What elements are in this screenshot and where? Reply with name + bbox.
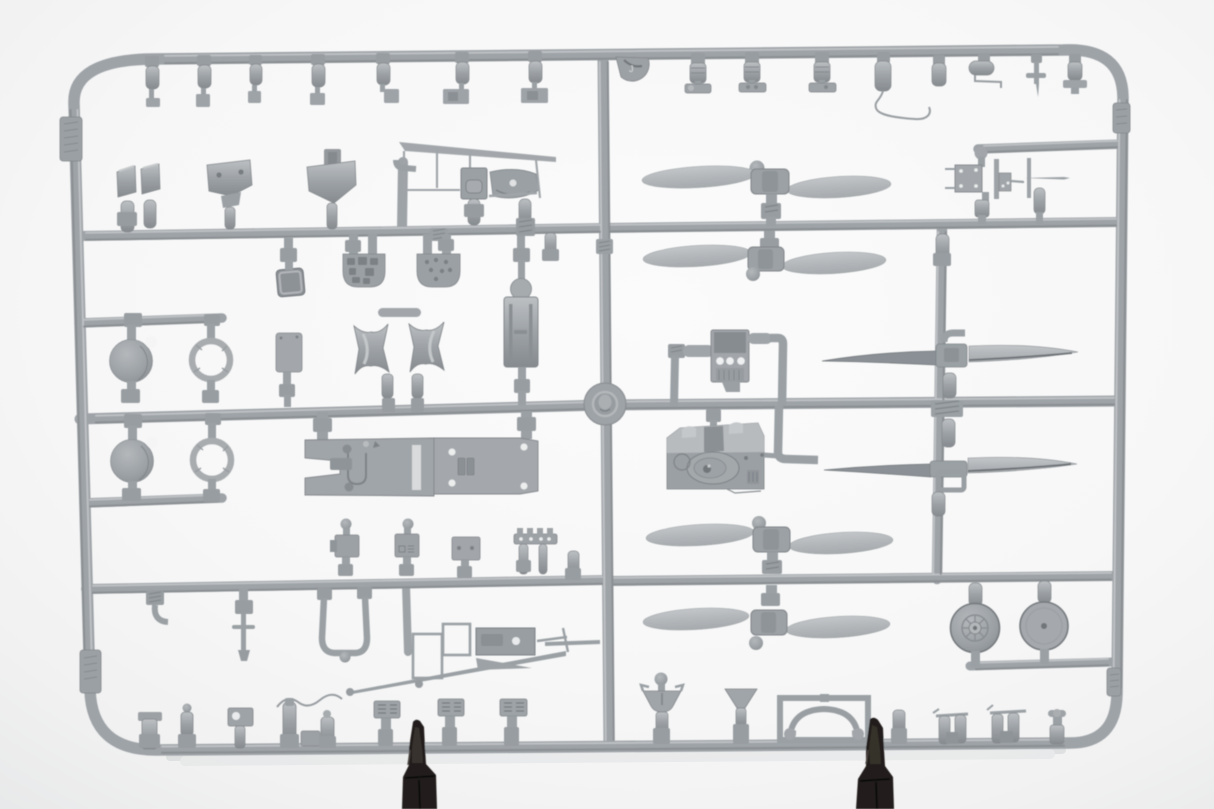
svg-text:J: J bbox=[629, 64, 634, 74]
